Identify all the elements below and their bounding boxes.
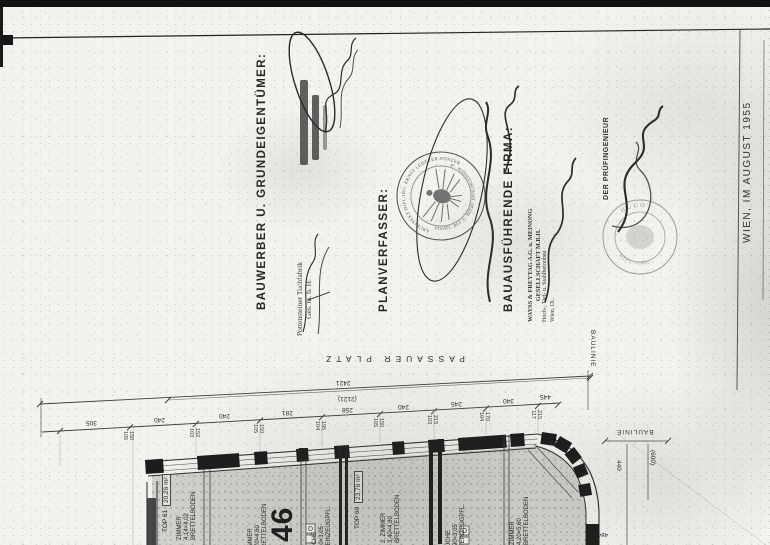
room-label: 2. ZIMMER3,40×4,80BRETTELBODEN bbox=[381, 495, 402, 543]
owner-stamp-line1: Pottensteiner Tuchfabrik bbox=[295, 262, 304, 336]
dimension: 258 bbox=[342, 406, 353, 413]
dimension: 281 bbox=[282, 409, 293, 416]
svg-text:DIPL.-ING.: DIPL.-ING. bbox=[617, 253, 653, 268]
firm-stamp: WAYSS & FREYTAG A.G. u. MEINONG GESELLSC… bbox=[527, 209, 557, 322]
sub-dimension: 215103 bbox=[426, 415, 438, 424]
dimension: 445 bbox=[540, 393, 551, 400]
sub-dimension: 170104 bbox=[478, 412, 490, 421]
firm-stamp-line1: WAYSS & FREYTAG A.G. u. MEINONG bbox=[527, 209, 535, 322]
room-area-badge: 20,26 m² bbox=[162, 474, 171, 506]
right-dimension-lines bbox=[602, 432, 770, 545]
right-dimension-600: (600) bbox=[649, 450, 656, 465]
left-exterior-wall bbox=[147, 481, 157, 545]
room-label: ZIMMER4,14×4,02BRETTELBODEN bbox=[177, 492, 198, 540]
sub-dimension: 152103 bbox=[188, 428, 200, 437]
sub-dimension: 150105 bbox=[372, 418, 384, 427]
right-dimension-440: 440 bbox=[615, 460, 622, 471]
label-pruefingenieur: DER PRÜFINGENIEUR bbox=[603, 117, 610, 200]
architect-signature bbox=[486, 102, 493, 302]
label-place-date: WIEN, IM AUGUST 1955 bbox=[742, 101, 753, 243]
room-top-number: TOP 60 bbox=[354, 507, 361, 529]
owner-signature-oval bbox=[280, 27, 344, 136]
total-dimension-lower: (2121) bbox=[338, 395, 357, 402]
room-area-badge: 23,76 m² bbox=[354, 471, 363, 503]
label-bauwerber: BAUWERBER U. GRUNDEIGENTÜMER: bbox=[256, 53, 268, 310]
dimension: 240 bbox=[219, 412, 230, 419]
firm-stamp-line2: GESELLSCHAFT M.B.H. bbox=[535, 209, 543, 322]
right-dimension-484: 484 bbox=[598, 531, 608, 537]
dimension: 240 bbox=[154, 416, 165, 423]
room-label: ZIMMER3,70×4,60BRETTELBODEN bbox=[248, 504, 269, 545]
dimension: 340 bbox=[503, 397, 514, 404]
pruef-stamp-arc-bottom: DIPL.-ING. bbox=[617, 253, 653, 268]
sub-dimension: 150105 bbox=[252, 424, 264, 433]
scanned-building-plan: ARCHITEKT DIPL.ING. ERNST LEDERER-PONZER… bbox=[0, 0, 770, 545]
kitchen-label: KÜCHE1,90×3,05STEINZEUGPFL. bbox=[446, 504, 467, 545]
dimension: 245 bbox=[451, 400, 462, 407]
owner-stamp: Pottensteiner Tuchfabrik Ges. m. b. H. bbox=[295, 262, 313, 336]
firm-stamp-line4: Wien, IX. bbox=[550, 209, 558, 322]
pruef-round-stamp: HUGO DIPL.-ING. bbox=[603, 200, 677, 274]
sub-dimension: 215117 bbox=[530, 410, 542, 419]
sub-dimension: 195104 bbox=[314, 421, 326, 430]
firm-stamp-line3: Hoch-, Tief- u. Stahlbetonbau bbox=[542, 209, 550, 322]
kitchen-label: KÜCHE1,40×3,05STEINZEUGPFL. bbox=[312, 506, 333, 545]
owner-stamp-line2: Ges. m. b. H. bbox=[304, 262, 313, 336]
baulinie-bottom-label: BAULINIE bbox=[616, 428, 654, 435]
room-label: ZIMMER4,20×5,60BRETTELBODEN bbox=[510, 497, 531, 545]
dimension: 240 bbox=[398, 403, 409, 410]
sub-dimension: 150105 bbox=[122, 431, 134, 440]
label-planverfasser: PLANVERFASSER: bbox=[378, 188, 390, 312]
owner-signature-flourish bbox=[325, 38, 356, 132]
house-number: 46 bbox=[266, 507, 300, 542]
street-label: PASSAUER PLATZ bbox=[318, 354, 468, 364]
dimension: 305 bbox=[86, 419, 97, 426]
room-top-number: TOP 61 bbox=[162, 510, 169, 532]
baulinie-vertical-label: BAULINIE bbox=[589, 330, 596, 368]
label-bauausfuehrende-firma: BAUAUSFÜHRENDE FIRMA: bbox=[503, 126, 515, 312]
total-dimension-upper: 2421 bbox=[336, 379, 350, 386]
